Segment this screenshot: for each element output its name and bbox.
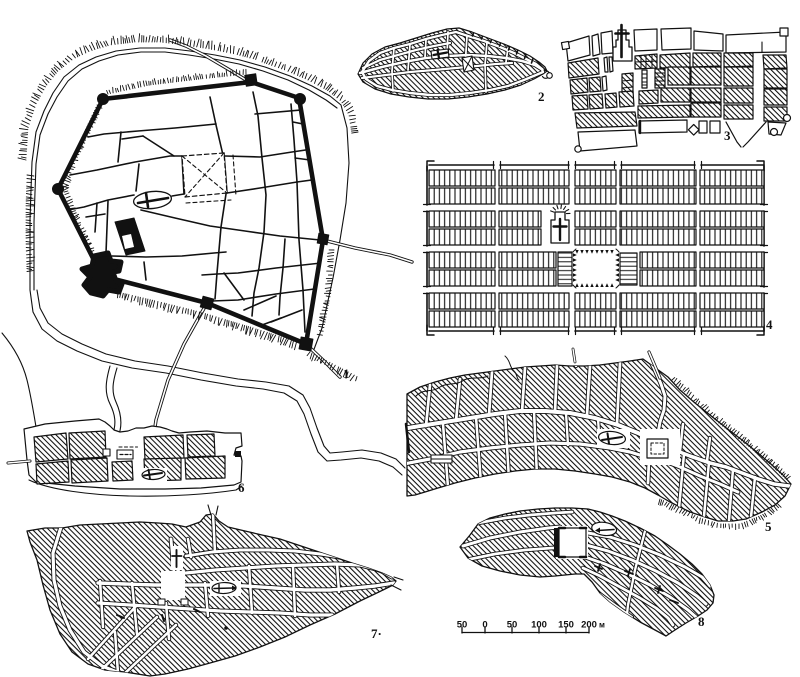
svg-text:200: 200 xyxy=(581,620,597,631)
svg-text:2: 2 xyxy=(538,89,545,104)
svg-text:0: 0 xyxy=(482,620,487,631)
svg-text:50: 50 xyxy=(457,620,468,631)
svg-text:5: 5 xyxy=(765,519,772,534)
svg-text:1: 1 xyxy=(343,366,350,381)
svg-text:8: 8 xyxy=(698,614,705,629)
svg-text:100: 100 xyxy=(531,620,547,631)
svg-text:3: 3 xyxy=(724,128,731,143)
svg-text:150: 150 xyxy=(558,620,574,631)
svg-text:4: 4 xyxy=(766,317,773,332)
svg-text:м: м xyxy=(599,621,605,630)
svg-text:6: 6 xyxy=(238,480,245,495)
svg-text:7·: 7· xyxy=(371,626,382,641)
svg-text:50: 50 xyxy=(507,620,518,631)
